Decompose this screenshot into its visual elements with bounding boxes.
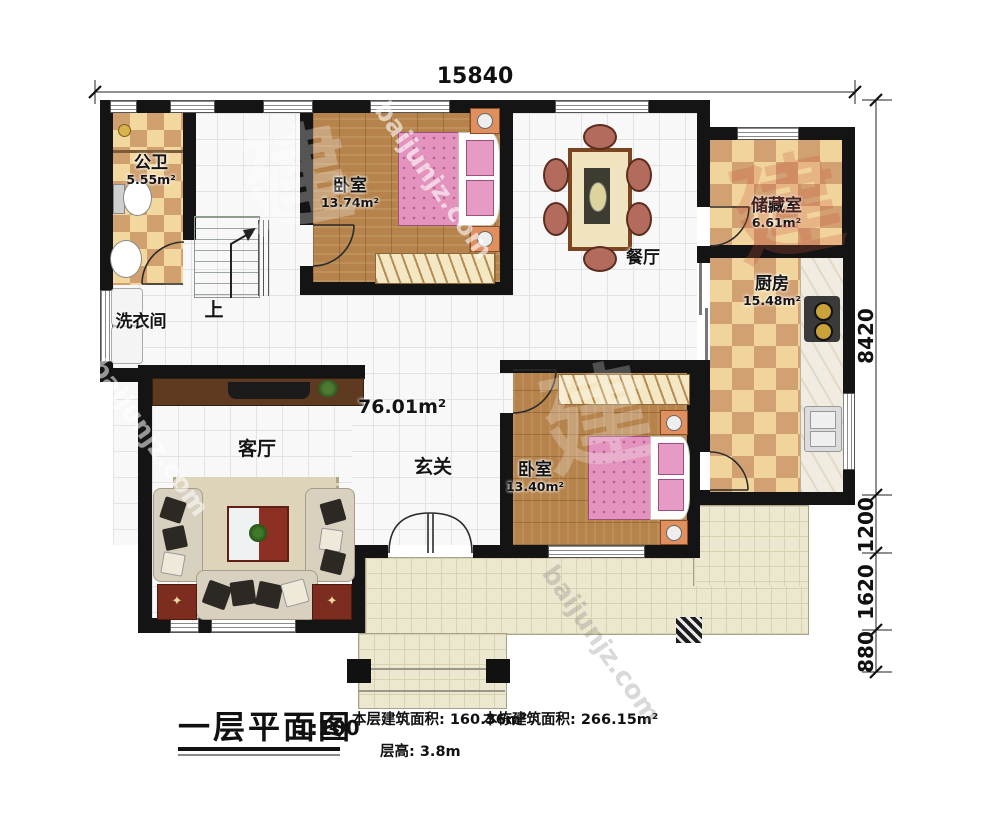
entrance-double-door-arc — [389, 513, 472, 553]
bedroom2-door-arc — [513, 370, 556, 413]
floor-height-text: 层高: 3.8m — [380, 740, 461, 761]
building-area-text: 本栋建筑面积: 266.15m² — [483, 708, 658, 729]
floor-plan-canvas: 公卫 5.55m² 卧室 13.74m² 餐厅 储藏室 6.61m² 厨房 15… — [0, 0, 1000, 833]
title-underline — [178, 747, 340, 751]
dimension-top-width: 15840 — [415, 64, 535, 89]
bedroom1-door-arc — [313, 225, 354, 266]
storage-door-arc — [710, 207, 749, 246]
dimension-right-880: 880 — [854, 602, 878, 702]
stair-arrow — [231, 233, 250, 298]
plan-scale: 1:100 — [296, 716, 360, 740]
stair-arrow-head — [243, 228, 256, 241]
dimension-right-8420: 8420 — [854, 286, 878, 386]
title-underline-thin — [178, 754, 340, 756]
bathroom-door-arc — [142, 242, 184, 284]
kitchen-door-arc — [710, 452, 748, 490]
